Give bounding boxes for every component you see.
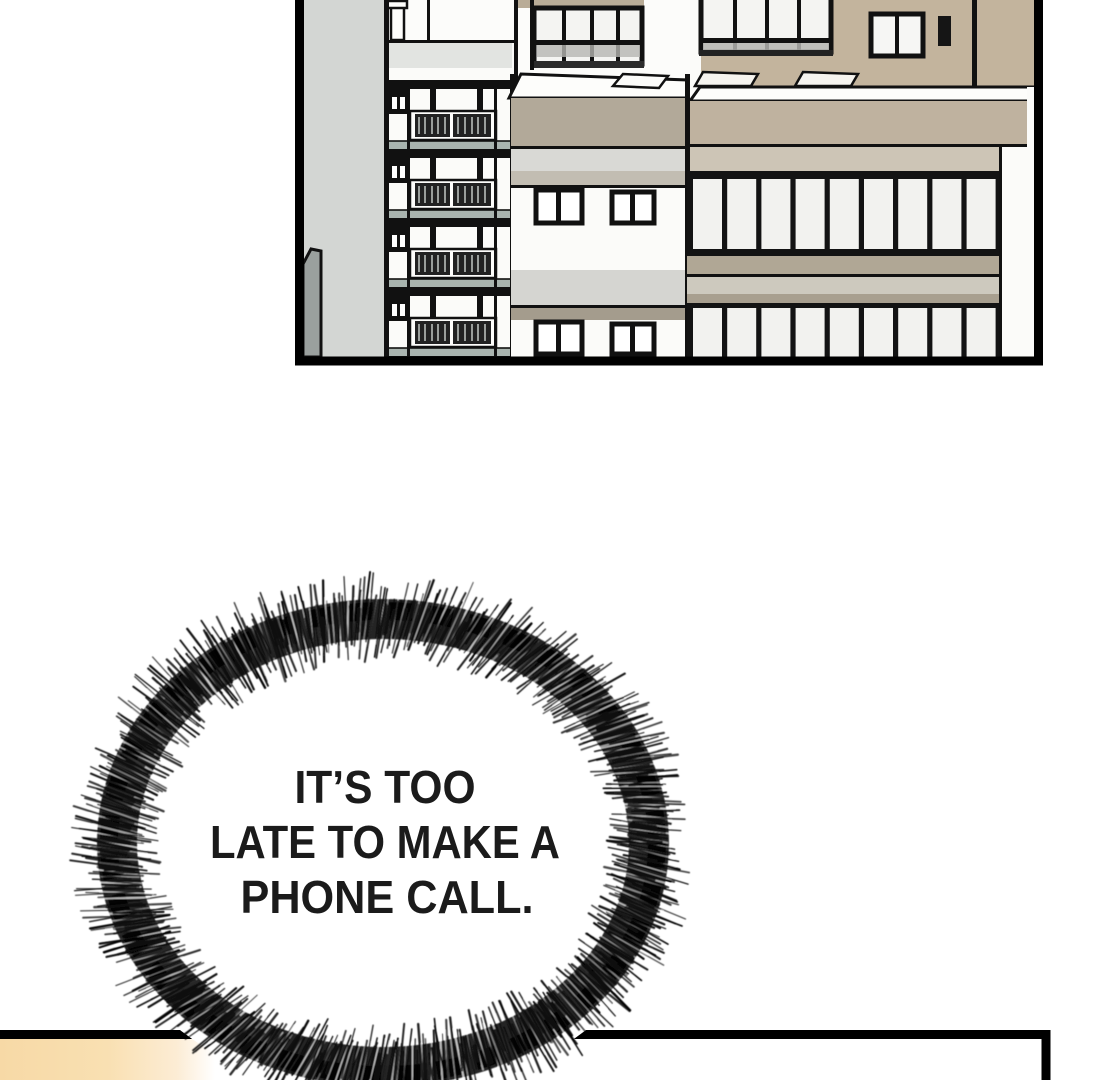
svg-text:PHONE CALL.: PHONE CALL. [241,871,534,923]
svg-text:LATE TO MAKE A: LATE TO MAKE A [210,816,560,868]
svg-text:IT’S TOO: IT’S TOO [295,761,476,813]
